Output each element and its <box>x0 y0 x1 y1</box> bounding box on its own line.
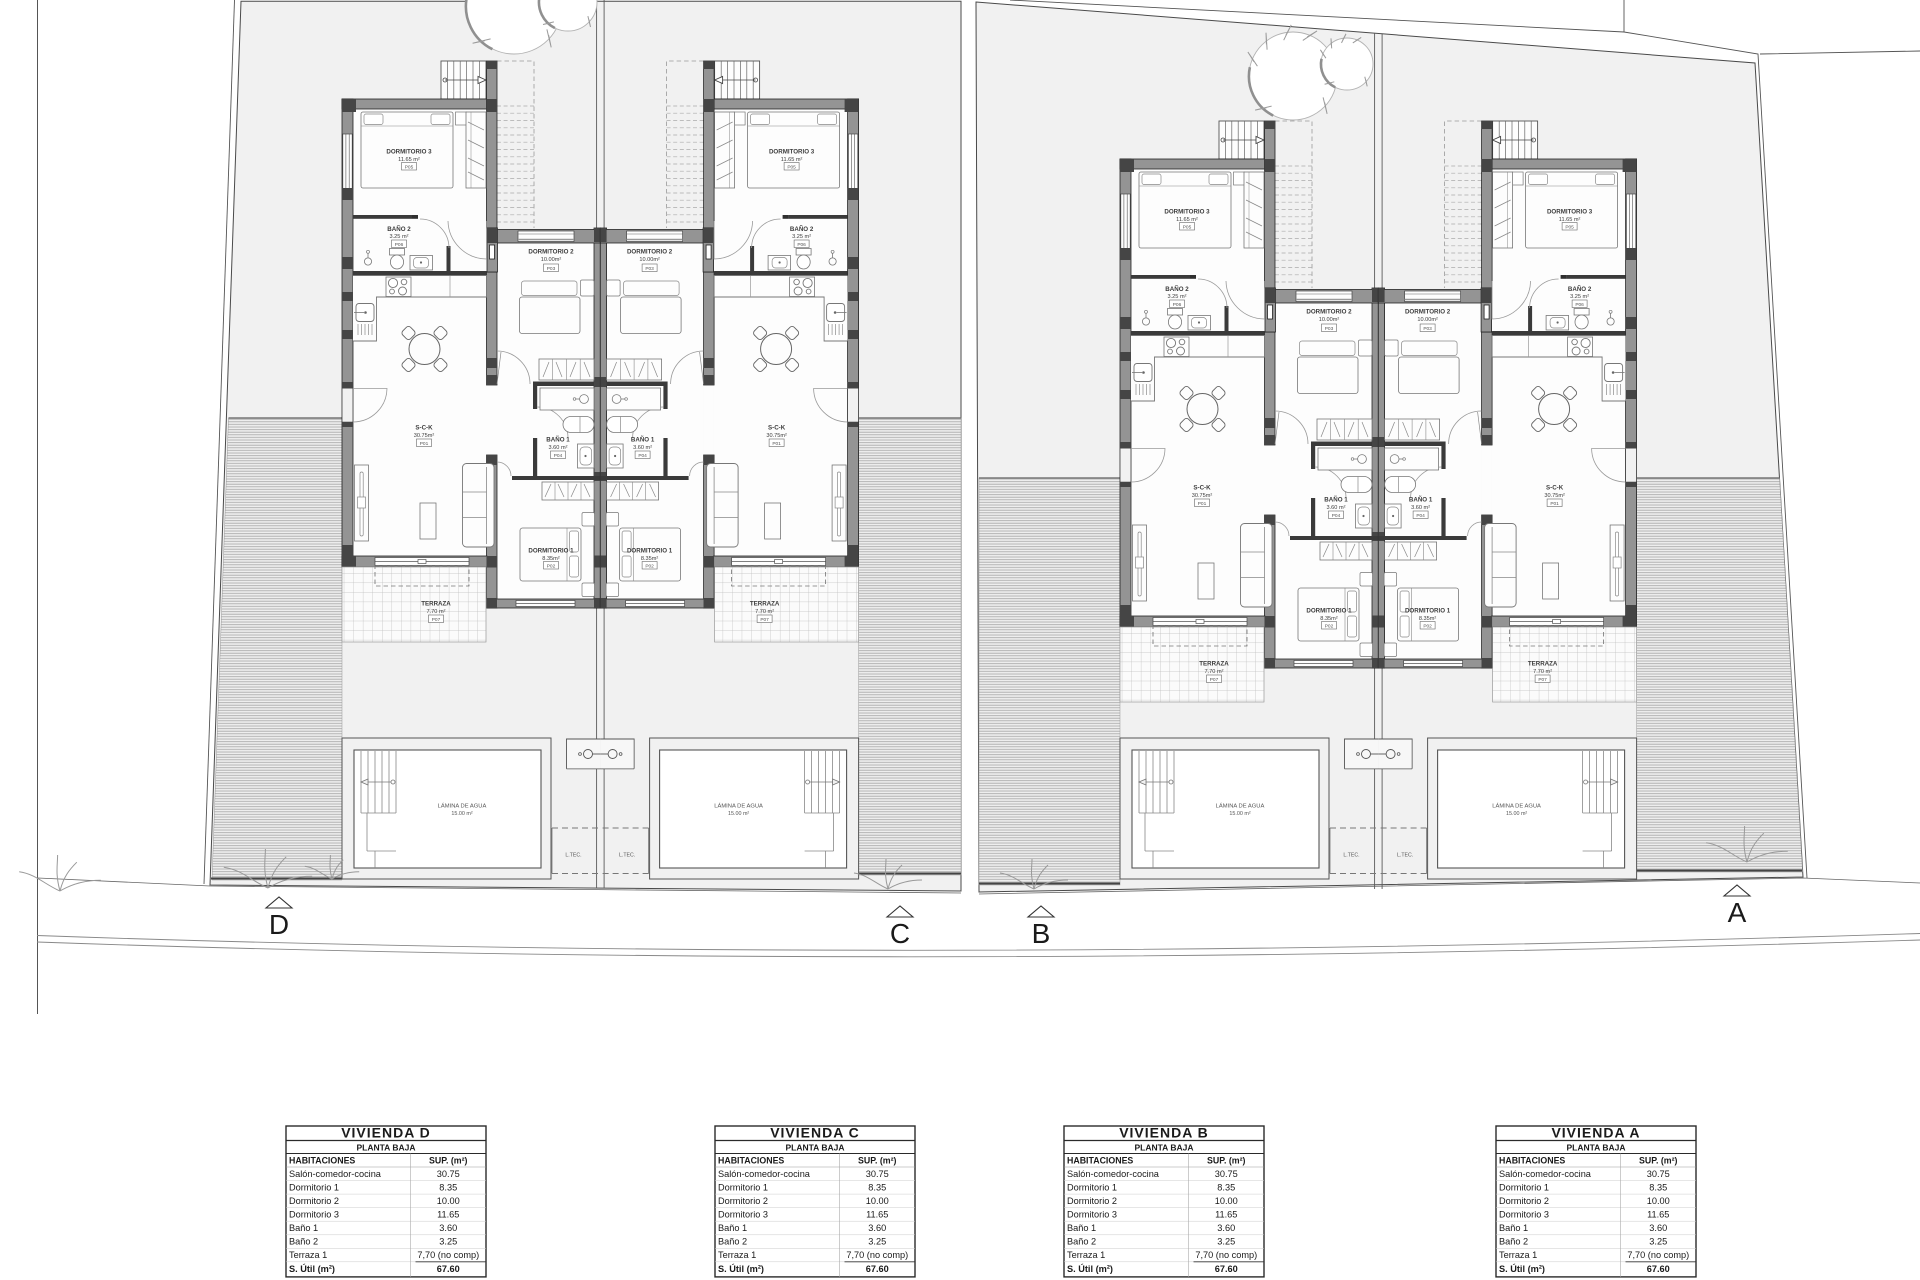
svg-text:HABITACIONES: HABITACIONES <box>289 1156 355 1166</box>
svg-text:P07: P07 <box>1210 677 1219 683</box>
svg-text:BAÑO 2: BAÑO 2 <box>387 226 411 233</box>
svg-text:Baño 1: Baño 1 <box>1067 1223 1096 1233</box>
svg-text:Salón-comedor-cocina: Salón-comedor-cocina <box>289 1169 382 1179</box>
svg-text:11.65: 11.65 <box>866 1210 888 1220</box>
svg-text:3.60: 3.60 <box>868 1223 886 1233</box>
svg-text:Dormitorio 2: Dormitorio 2 <box>289 1196 339 1206</box>
svg-text:P05: P05 <box>1183 224 1192 230</box>
svg-text:Dormitorio 2: Dormitorio 2 <box>1067 1196 1117 1206</box>
svg-text:8.35: 8.35 <box>1217 1183 1235 1193</box>
svg-text:S-C-K: S-C-K <box>415 425 433 432</box>
svg-text:8.35: 8.35 <box>439 1183 457 1193</box>
svg-text:Dormitorio 3: Dormitorio 3 <box>289 1210 339 1220</box>
svg-text:VIVIENDA B: VIVIENDA B <box>1119 1125 1209 1141</box>
svg-text:67.60: 67.60 <box>866 1264 889 1274</box>
svg-text:D: D <box>269 909 289 940</box>
svg-text:LÁMINA DE AGUA: LÁMINA DE AGUA <box>1216 803 1265 810</box>
svg-text:11.65 m²: 11.65 m² <box>781 157 803 163</box>
svg-text:11.65: 11.65 <box>1647 1210 1669 1220</box>
svg-text:SUP. (m²): SUP. (m²) <box>858 1156 897 1166</box>
svg-text:Dormitorio 1: Dormitorio 1 <box>718 1183 768 1193</box>
svg-text:DORMITORIO 1: DORMITORIO 1 <box>627 548 673 555</box>
svg-text:3.60 m²: 3.60 m² <box>549 445 568 451</box>
svg-text:P03: P03 <box>645 266 654 272</box>
svg-text:BAÑO 2: BAÑO 2 <box>1165 286 1189 293</box>
svg-text:15.00 m²: 15.00 m² <box>1506 811 1527 817</box>
svg-text:Baño 2: Baño 2 <box>718 1237 747 1247</box>
svg-text:30.75: 30.75 <box>866 1169 889 1179</box>
svg-text:3.25 m²: 3.25 m² <box>390 234 409 240</box>
svg-text:Dormitorio 2: Dormitorio 2 <box>718 1196 768 1206</box>
svg-text:Dormitorio 3: Dormitorio 3 <box>1067 1210 1117 1220</box>
svg-text:TERRAZA: TERRAZA <box>1199 661 1229 668</box>
svg-text:7,70 (no comp): 7,70 (no comp) <box>846 1250 908 1260</box>
svg-text:Terraza 1: Terraza 1 <box>289 1250 327 1260</box>
svg-text:P01: P01 <box>772 441 781 447</box>
svg-text:Dormitorio 3: Dormitorio 3 <box>718 1210 768 1220</box>
svg-text:3.60: 3.60 <box>439 1223 457 1233</box>
svg-text:BAÑO 1: BAÑO 1 <box>546 437 570 444</box>
svg-text:HABITACIONES: HABITACIONES <box>1067 1156 1133 1166</box>
svg-text:A: A <box>1728 897 1747 928</box>
svg-text:BAÑO 1: BAÑO 1 <box>1409 497 1433 504</box>
svg-text:B: B <box>1032 918 1051 949</box>
svg-text:P02: P02 <box>1423 623 1432 629</box>
svg-text:8.35: 8.35 <box>1649 1183 1667 1193</box>
svg-text:10.00: 10.00 <box>866 1196 889 1206</box>
svg-text:DORMITORIO 2: DORMITORIO 2 <box>528 249 574 256</box>
svg-text:VIVIENDA A: VIVIENDA A <box>1551 1125 1640 1141</box>
svg-text:P03: P03 <box>547 266 556 272</box>
svg-text:P06: P06 <box>1173 302 1182 308</box>
svg-text:DORMITORIO 3: DORMITORIO 3 <box>1164 209 1210 216</box>
svg-text:P01: P01 <box>1198 501 1207 507</box>
svg-text:BAÑO 1: BAÑO 1 <box>631 437 655 444</box>
svg-text:S-C-K: S-C-K <box>768 425 786 432</box>
svg-text:Baño 1: Baño 1 <box>718 1223 747 1233</box>
svg-text:3.25: 3.25 <box>1217 1237 1235 1247</box>
svg-text:P03: P03 <box>1325 326 1334 332</box>
svg-text:P04: P04 <box>554 453 563 459</box>
svg-text:15.00 m²: 15.00 m² <box>1229 811 1250 817</box>
svg-text:DORMITORIO 1: DORMITORIO 1 <box>1405 608 1451 615</box>
svg-text:67.60: 67.60 <box>1215 1264 1238 1274</box>
svg-text:P04: P04 <box>638 453 647 459</box>
svg-text:DORMITORIO 1: DORMITORIO 1 <box>528 548 574 555</box>
svg-text:10.00: 10.00 <box>437 1196 460 1206</box>
svg-text:3.60: 3.60 <box>1217 1223 1235 1233</box>
svg-text:10.00m²: 10.00m² <box>541 257 562 263</box>
svg-text:Dormitorio 2: Dormitorio 2 <box>1499 1196 1549 1206</box>
svg-text:S-C-K: S-C-K <box>1193 485 1211 492</box>
svg-text:DORMITORIO 3: DORMITORIO 3 <box>1547 209 1593 216</box>
svg-text:15.00 m²: 15.00 m² <box>728 811 749 817</box>
svg-text:PLANTA BAJA: PLANTA BAJA <box>785 1143 844 1153</box>
svg-text:S. Útil (m²): S. Útil (m²) <box>1067 1263 1113 1274</box>
svg-text:10.00: 10.00 <box>1215 1196 1238 1206</box>
svg-text:Salón-comedor-cocina: Salón-comedor-cocina <box>718 1169 811 1179</box>
svg-text:11.65: 11.65 <box>437 1210 459 1220</box>
svg-text:30.75m²: 30.75m² <box>1544 493 1565 499</box>
svg-text:P07: P07 <box>760 617 769 623</box>
svg-text:8.35m²: 8.35m² <box>542 556 560 562</box>
svg-text:Terraza 1: Terraza 1 <box>1067 1250 1105 1260</box>
svg-text:LÁMINA DE AGUA: LÁMINA DE AGUA <box>438 803 487 810</box>
svg-text:DORMITORIO 2: DORMITORIO 2 <box>627 249 673 256</box>
svg-text:S. Útil (m²): S. Útil (m²) <box>718 1263 764 1274</box>
svg-text:P07: P07 <box>432 617 441 623</box>
svg-text:SUP. (m²): SUP. (m²) <box>1207 1156 1246 1166</box>
svg-text:30.75m²: 30.75m² <box>1192 493 1213 499</box>
svg-text:P06: P06 <box>797 242 806 248</box>
svg-text:30.75m²: 30.75m² <box>766 433 787 439</box>
svg-text:LÁMINA DE AGUA: LÁMINA DE AGUA <box>1492 803 1541 810</box>
svg-text:30.75m²: 30.75m² <box>414 433 435 439</box>
svg-text:7.70 m²: 7.70 m² <box>427 609 446 615</box>
svg-text:Baño 2: Baño 2 <box>289 1237 318 1247</box>
svg-text:Baño 2: Baño 2 <box>1499 1237 1528 1247</box>
svg-text:P05: P05 <box>405 164 414 170</box>
svg-text:3.25: 3.25 <box>1649 1237 1667 1247</box>
svg-text:Dormitorio 1: Dormitorio 1 <box>1067 1183 1117 1193</box>
svg-text:P07: P07 <box>1538 677 1547 683</box>
svg-text:P06: P06 <box>1575 302 1584 308</box>
svg-text:30.75: 30.75 <box>1215 1169 1238 1179</box>
svg-text:Dormitorio 1: Dormitorio 1 <box>1499 1183 1549 1193</box>
svg-text:7.70 m²: 7.70 m² <box>1205 669 1224 675</box>
svg-text:3.25: 3.25 <box>439 1237 457 1247</box>
svg-text:L.TEC.: L.TEC. <box>1397 853 1413 859</box>
svg-text:VIVIENDA C: VIVIENDA C <box>770 1125 860 1141</box>
svg-text:C: C <box>890 918 910 949</box>
svg-text:P02: P02 <box>645 563 654 569</box>
svg-text:11.65 m²: 11.65 m² <box>398 157 420 163</box>
svg-text:P02: P02 <box>1325 623 1334 629</box>
svg-text:TERRAZA: TERRAZA <box>750 601 780 608</box>
svg-text:P01: P01 <box>420 441 429 447</box>
svg-text:S. Útil (m²): S. Útil (m²) <box>289 1263 335 1274</box>
svg-text:DORMITORIO 1: DORMITORIO 1 <box>1306 608 1352 615</box>
svg-text:3.60 m²: 3.60 m² <box>1327 505 1346 511</box>
svg-text:Terraza 1: Terraza 1 <box>1499 1250 1537 1260</box>
svg-text:3.25 m²: 3.25 m² <box>792 234 811 240</box>
svg-text:7,70 (no comp): 7,70 (no comp) <box>1627 1250 1689 1260</box>
svg-text:10.00: 10.00 <box>1647 1196 1670 1206</box>
svg-text:3.60: 3.60 <box>1649 1223 1667 1233</box>
svg-text:30.75: 30.75 <box>437 1169 460 1179</box>
svg-text:L.TEC.: L.TEC. <box>1343 853 1359 859</box>
svg-text:P01: P01 <box>1550 501 1559 507</box>
svg-text:8.35m²: 8.35m² <box>641 556 659 562</box>
svg-text:TERRAZA: TERRAZA <box>1528 661 1558 668</box>
svg-text:8.35: 8.35 <box>868 1183 886 1193</box>
svg-text:11.65 m²: 11.65 m² <box>1176 217 1198 223</box>
svg-text:P06: P06 <box>395 242 404 248</box>
svg-text:67.60: 67.60 <box>437 1264 460 1274</box>
svg-text:HABITACIONES: HABITACIONES <box>718 1156 784 1166</box>
svg-text:P04: P04 <box>1332 513 1341 519</box>
svg-text:11.65: 11.65 <box>1215 1210 1237 1220</box>
svg-text:3.60 m²: 3.60 m² <box>1411 505 1430 511</box>
svg-text:P03: P03 <box>1423 326 1432 332</box>
svg-text:3.25 m²: 3.25 m² <box>1168 294 1187 300</box>
svg-text:PLANTA BAJA: PLANTA BAJA <box>1566 1143 1625 1153</box>
svg-text:Dormitorio 1: Dormitorio 1 <box>289 1183 339 1193</box>
svg-text:DORMITORIO 2: DORMITORIO 2 <box>1405 309 1451 316</box>
svg-text:DORMITORIO 2: DORMITORIO 2 <box>1306 309 1352 316</box>
svg-text:VIVIENDA D: VIVIENDA D <box>341 1125 431 1141</box>
svg-text:7.70 m²: 7.70 m² <box>1533 669 1552 675</box>
svg-text:TERRAZA: TERRAZA <box>421 601 451 608</box>
svg-text:Terraza 1: Terraza 1 <box>718 1250 756 1260</box>
svg-text:Baño 2: Baño 2 <box>1067 1237 1096 1247</box>
svg-text:Baño 1: Baño 1 <box>289 1223 318 1233</box>
svg-text:SUP. (m²): SUP. (m²) <box>429 1156 468 1166</box>
svg-text:BAÑO 2: BAÑO 2 <box>790 226 814 233</box>
svg-text:BAÑO 1: BAÑO 1 <box>1324 497 1348 504</box>
svg-text:Baño 1: Baño 1 <box>1499 1223 1528 1233</box>
svg-text:15.00 m²: 15.00 m² <box>451 811 472 817</box>
svg-text:8.35m²: 8.35m² <box>1320 616 1338 622</box>
svg-text:10.00m²: 10.00m² <box>639 257 660 263</box>
svg-text:P04: P04 <box>1416 513 1425 519</box>
svg-text:PLANTA BAJA: PLANTA BAJA <box>356 1143 415 1153</box>
svg-text:L.TEC.: L.TEC. <box>619 853 635 859</box>
svg-text:10.00m²: 10.00m² <box>1319 317 1340 323</box>
svg-text:Salón-comedor-cocina: Salón-comedor-cocina <box>1067 1169 1160 1179</box>
svg-text:3.25: 3.25 <box>868 1237 886 1247</box>
svg-text:S-C-K: S-C-K <box>1546 485 1564 492</box>
svg-text:8.35m²: 8.35m² <box>1419 616 1437 622</box>
svg-text:7.70 m²: 7.70 m² <box>755 609 774 615</box>
svg-text:P05: P05 <box>1565 224 1574 230</box>
svg-text:L.TEC.: L.TEC. <box>565 853 581 859</box>
svg-text:HABITACIONES: HABITACIONES <box>1499 1156 1565 1166</box>
svg-text:67.60: 67.60 <box>1647 1264 1670 1274</box>
svg-text:DORMITORIO 3: DORMITORIO 3 <box>769 149 815 156</box>
svg-text:SUP. (m²): SUP. (m²) <box>1639 1156 1678 1166</box>
svg-text:3.60 m²: 3.60 m² <box>633 445 652 451</box>
svg-text:PLANTA BAJA: PLANTA BAJA <box>1134 1143 1193 1153</box>
svg-text:3.25 m²: 3.25 m² <box>1570 294 1589 300</box>
svg-text:11.65 m²: 11.65 m² <box>1559 217 1581 223</box>
svg-text:BAÑO 2: BAÑO 2 <box>1568 286 1592 293</box>
svg-text:LÁMINA DE AGUA: LÁMINA DE AGUA <box>714 803 763 810</box>
svg-text:DORMITORIO 3: DORMITORIO 3 <box>386 149 432 156</box>
svg-text:30.75: 30.75 <box>1647 1169 1670 1179</box>
svg-text:Salón-comedor-cocina: Salón-comedor-cocina <box>1499 1169 1592 1179</box>
svg-text:P05: P05 <box>787 164 796 170</box>
svg-text:S. Útil (m²): S. Útil (m²) <box>1499 1263 1545 1274</box>
svg-text:10.00m²: 10.00m² <box>1417 317 1438 323</box>
svg-text:Dormitorio 3: Dormitorio 3 <box>1499 1210 1549 1220</box>
svg-text:7,70 (no comp): 7,70 (no comp) <box>417 1250 479 1260</box>
svg-text:7,70 (no comp): 7,70 (no comp) <box>1195 1250 1257 1260</box>
svg-text:P02: P02 <box>547 563 556 569</box>
